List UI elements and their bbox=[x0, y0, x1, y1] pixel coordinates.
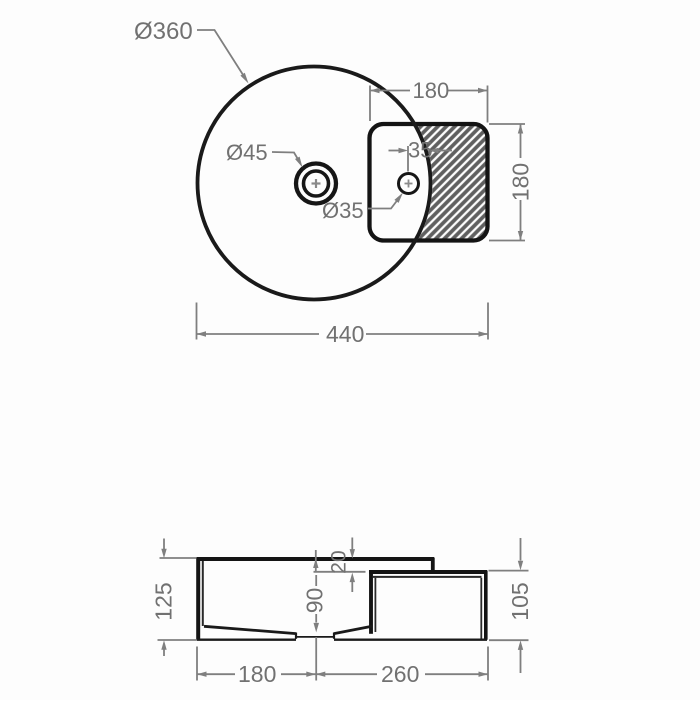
svg-text:440: 440 bbox=[326, 321, 364, 347]
svg-text:180: 180 bbox=[508, 163, 534, 201]
svg-text:35: 35 bbox=[408, 138, 432, 163]
svg-text:20: 20 bbox=[328, 550, 351, 573]
svg-text:180: 180 bbox=[413, 78, 450, 103]
svg-text:Ø360: Ø360 bbox=[134, 18, 193, 45]
svg-text:105: 105 bbox=[507, 582, 533, 620]
svg-text:180: 180 bbox=[238, 661, 276, 687]
svg-text:260: 260 bbox=[381, 661, 419, 687]
svg-text:90: 90 bbox=[302, 588, 328, 614]
svg-text:125: 125 bbox=[151, 582, 177, 620]
svg-text:Ø35: Ø35 bbox=[322, 198, 364, 223]
svg-text:Ø45: Ø45 bbox=[226, 140, 268, 165]
